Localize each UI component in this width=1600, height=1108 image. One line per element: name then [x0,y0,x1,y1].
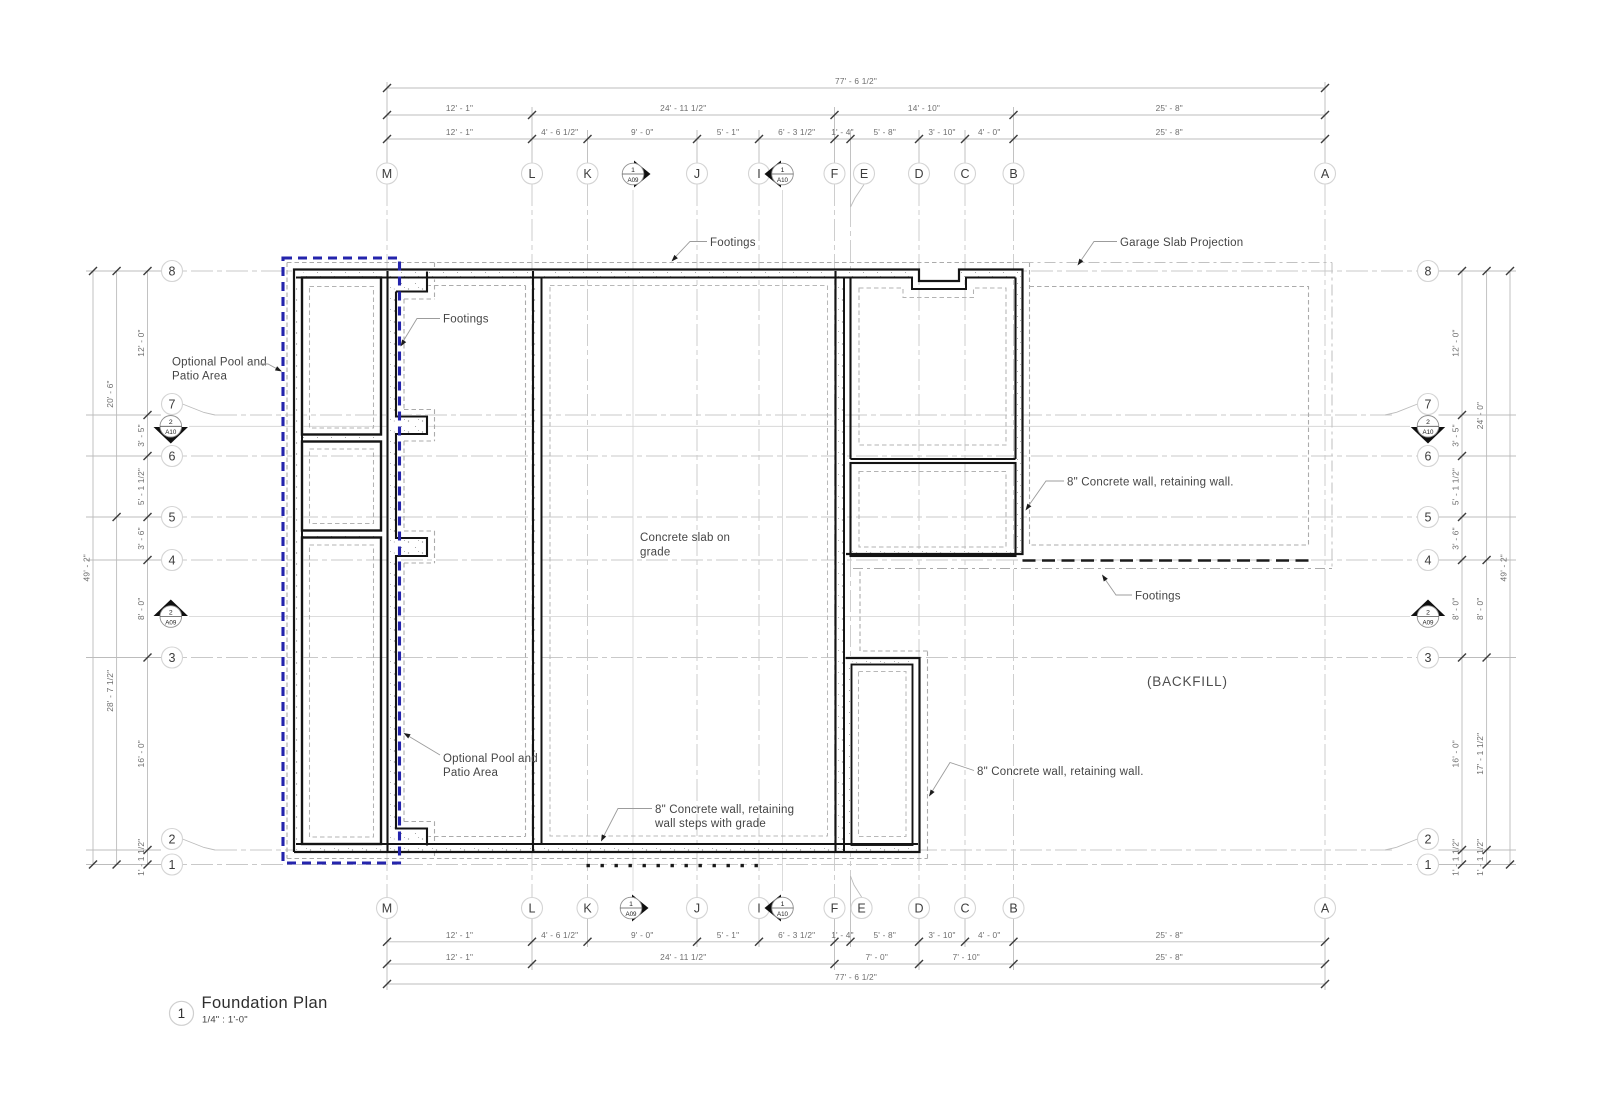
svg-text:4' - 0": 4' - 0" [978,127,1001,137]
svg-text:B: B [1009,167,1017,181]
svg-text:9' - 0": 9' - 0" [631,127,654,137]
svg-text:24' - 11 1/2": 24' - 11 1/2" [660,952,706,962]
svg-text:(BACKFILL): (BACKFILL) [1147,674,1228,689]
svg-text:1' - 1 1/2": 1' - 1 1/2" [1475,839,1485,876]
svg-text:8" Concrete wall, retaining wa: 8" Concrete wall, retaining wall. [1067,477,1234,489]
svg-text:16' - 0": 16' - 0" [136,740,146,767]
svg-text:25' - 8": 25' - 8" [1156,127,1183,137]
svg-text:20' - 6": 20' - 6" [105,380,115,407]
svg-text:1: 1 [781,901,785,908]
svg-text:12' - 0": 12' - 0" [1451,329,1461,356]
svg-text:2: 2 [169,832,176,846]
svg-text:17' - 1 1/2": 17' - 1 1/2" [1475,733,1485,775]
svg-text:Footings: Footings [710,237,756,249]
svg-text:3' - 5": 3' - 5" [136,424,146,447]
svg-text:5' - 1": 5' - 1" [717,127,740,137]
svg-text:Optional Pool and: Optional Pool and [443,753,538,765]
svg-text:8: 8 [1425,264,1432,278]
svg-text:1: 1 [631,167,635,174]
svg-text:3' - 10": 3' - 10" [928,930,955,940]
svg-text:1: 1 [178,1006,186,1021]
svg-text:I: I [757,901,760,915]
svg-text:D: D [914,901,923,915]
svg-text:3' - 6": 3' - 6" [136,527,146,550]
svg-text:28' - 7 1/2": 28' - 7 1/2" [105,670,115,712]
svg-text:grade: grade [640,547,670,559]
svg-text:A09: A09 [165,619,177,626]
svg-text:1: 1 [1425,858,1432,872]
svg-text:3' - 6": 3' - 6" [1451,527,1461,550]
svg-text:M: M [382,167,392,181]
svg-text:Optional Pool and: Optional Pool and [172,357,267,369]
svg-text:A10: A10 [1422,429,1434,436]
svg-text:1' - 1 1/2": 1' - 1 1/2" [136,839,146,876]
svg-text:1' - 4": 1' - 4" [831,930,854,940]
svg-text:6: 6 [169,449,176,463]
svg-text:5' - 1 1/2": 5' - 1 1/2" [136,468,146,505]
svg-text:77' - 6 1/2": 77' - 6 1/2" [835,972,877,982]
svg-text:4' - 0": 4' - 0" [978,930,1001,940]
svg-text:C: C [960,167,969,181]
svg-text:12' - 1": 12' - 1" [446,930,473,940]
svg-text:25' - 8": 25' - 8" [1156,952,1183,962]
svg-text:12' - 1": 12' - 1" [446,127,473,137]
svg-text:6: 6 [1425,449,1432,463]
svg-text:1: 1 [781,167,785,174]
svg-text:K: K [583,167,592,181]
svg-text:12' - 1": 12' - 1" [446,103,473,113]
svg-text:1' - 4": 1' - 4" [831,127,854,137]
svg-text:7' - 10": 7' - 10" [953,952,980,962]
svg-text:A09: A09 [625,911,637,918]
svg-text:12' - 1": 12' - 1" [446,952,473,962]
svg-text:8' - 0": 8' - 0" [1475,597,1485,620]
svg-text:A10: A10 [777,911,789,918]
svg-text:8: 8 [169,264,176,278]
svg-text:5' - 1 1/2": 5' - 1 1/2" [1451,468,1461,505]
svg-text:3' - 5": 3' - 5" [1451,424,1461,447]
svg-text:Garage Slab Projection: Garage Slab Projection [1120,237,1243,249]
svg-text:5' - 8": 5' - 8" [873,127,896,137]
svg-text:8' - 0": 8' - 0" [136,597,146,620]
svg-text:3: 3 [1425,651,1432,665]
svg-text:14' - 10": 14' - 10" [908,103,940,113]
svg-text:7' - 0": 7' - 0" [865,952,888,962]
svg-text:Footings: Footings [1135,591,1181,603]
svg-text:J: J [694,167,700,181]
svg-text:8' - 0": 8' - 0" [1451,597,1461,620]
svg-text:A09: A09 [627,177,639,184]
svg-text:Footings: Footings [443,314,489,326]
svg-text:E: E [860,167,868,181]
svg-text:16' - 0": 16' - 0" [1451,740,1461,767]
svg-text:A: A [1321,901,1330,915]
svg-text:49' - 2": 49' - 2" [1499,554,1509,581]
svg-text:C: C [960,901,969,915]
svg-text:4: 4 [169,553,176,567]
svg-text:A10: A10 [165,429,177,436]
svg-text:L: L [529,901,536,915]
svg-text:1' - 1 1/2": 1' - 1 1/2" [1451,839,1461,876]
svg-text:1: 1 [629,901,633,908]
svg-text:5' - 1": 5' - 1" [717,930,740,940]
svg-text:25' - 8": 25' - 8" [1156,930,1183,940]
svg-text:8" Concrete wall, retaining: 8" Concrete wall, retaining [655,804,794,816]
svg-text:F: F [831,167,839,181]
svg-text:3: 3 [169,651,176,665]
svg-text:5' - 8": 5' - 8" [873,930,896,940]
svg-text:E: E [857,901,865,915]
svg-text:9' - 0": 9' - 0" [631,930,654,940]
svg-text:6' - 3 1/2": 6' - 3 1/2" [778,930,815,940]
svg-text:2: 2 [1426,419,1430,426]
svg-text:Concrete slab on: Concrete slab on [640,532,730,544]
svg-text:1/4" : 1'-0": 1/4" : 1'-0" [202,1015,248,1026]
svg-text:D: D [914,167,923,181]
svg-text:Patio Area: Patio Area [172,371,227,383]
svg-text:8" Concrete wall, retaining wa: 8" Concrete wall, retaining wall. [977,766,1144,778]
svg-text:B: B [1009,901,1017,915]
svg-text:2: 2 [1426,609,1430,616]
svg-text:2: 2 [1425,832,1432,846]
svg-text:A09: A09 [1422,619,1434,626]
svg-text:77' - 6 1/2": 77' - 6 1/2" [835,76,877,86]
svg-text:L: L [529,167,536,181]
svg-text:Foundation Plan: Foundation Plan [202,994,328,1012]
svg-text:M: M [382,901,392,915]
svg-text:5: 5 [1425,510,1432,524]
svg-text:F: F [831,901,839,915]
svg-text:wall steps with grade: wall steps with grade [654,818,766,830]
svg-text:24' - 11 1/2": 24' - 11 1/2" [660,103,706,113]
svg-text:6' - 3 1/2": 6' - 3 1/2" [778,127,815,137]
svg-text:7: 7 [169,397,176,411]
svg-text:12' - 0": 12' - 0" [136,329,146,356]
svg-text:Patio Area: Patio Area [443,767,498,779]
svg-text:3' - 10": 3' - 10" [928,127,955,137]
svg-text:A10: A10 [777,177,789,184]
svg-text:4' - 6 1/2": 4' - 6 1/2" [541,127,578,137]
svg-text:4' - 6 1/2": 4' - 6 1/2" [541,930,578,940]
svg-text:24' - 0": 24' - 0" [1475,402,1485,429]
svg-text:25' - 8": 25' - 8" [1156,103,1183,113]
svg-text:1: 1 [169,858,176,872]
svg-text:5: 5 [169,510,176,524]
svg-text:J: J [694,901,700,915]
svg-text:2: 2 [169,419,173,426]
svg-text:K: K [583,901,592,915]
svg-text:49' - 2": 49' - 2" [82,554,92,581]
svg-text:4: 4 [1425,553,1432,567]
svg-text:A: A [1321,167,1330,181]
svg-text:7: 7 [1425,397,1432,411]
svg-text:I: I [757,167,760,181]
svg-text:2: 2 [169,609,173,616]
